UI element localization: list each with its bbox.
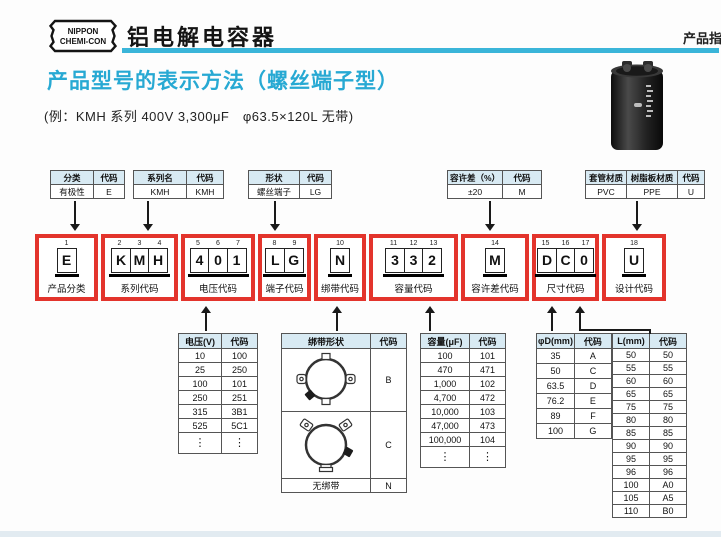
page-corner-label: 产品指 <box>683 28 721 47</box>
table-row: PVCPPEU <box>586 185 705 199</box>
column-header: 代码 <box>187 171 224 185</box>
table-cell: 104 <box>470 433 506 447</box>
table-row: KMHKMH <box>134 185 224 199</box>
column-header: 树脂板材质 <box>627 171 678 185</box>
table-row: 250251 <box>179 391 258 405</box>
table-row: 9090 <box>613 440 687 453</box>
code-box-5: 10N绑带代码 <box>314 234 366 301</box>
table-cell: ⋮ <box>421 447 470 468</box>
code-char: 0 <box>208 248 228 273</box>
table-cell: 10 <box>179 349 222 363</box>
table-row: 110B0 <box>613 505 687 518</box>
table-cell: 100 <box>222 349 258 363</box>
table-cell: C <box>371 412 407 479</box>
digit-positions: 89 <box>265 240 305 247</box>
column-header: 代码 <box>503 171 542 185</box>
table-cell: 473 <box>470 419 506 433</box>
table-cell: 47,000 <box>421 419 470 433</box>
table-row: 8585 <box>613 427 687 440</box>
code-characters: DC0 <box>537 248 594 273</box>
table-cell: 470 <box>421 363 470 377</box>
table-cell: ⋮ <box>222 433 258 454</box>
table-cell: 100 <box>179 377 222 391</box>
table-cell: 101 <box>222 377 258 391</box>
column-header: 代码 <box>222 334 258 349</box>
table: 绑带形状代码 B C无绑带N <box>281 333 407 493</box>
table-row: 无绑带N <box>282 479 407 493</box>
table-cell: 5C1 <box>222 419 258 433</box>
header-divider <box>122 48 719 53</box>
table-row: 76.2E <box>537 394 612 409</box>
table-cell: 25 <box>179 363 222 377</box>
table-cell: 100,000 <box>421 433 470 447</box>
position-number: 8 <box>265 240 285 247</box>
table: 容许差（%）代码±20M <box>447 170 542 199</box>
arrow-down-icon <box>489 201 491 225</box>
voltage-code-table: 电压(V)代码10100252501001012502513153B15255C… <box>178 333 258 454</box>
position-number: 2 <box>110 240 130 247</box>
table-row: C <box>282 412 407 479</box>
table-cell: 85 <box>613 427 650 440</box>
table-cell: 90 <box>650 440 687 453</box>
position-number: 11 <box>384 240 404 247</box>
table-cell: 50 <box>650 349 687 362</box>
column-header: φD(mm) <box>537 334 575 349</box>
table-cell: 10,000 <box>421 405 470 419</box>
table-row: ±20M <box>448 185 542 199</box>
table-cell: C <box>574 364 611 379</box>
table-cell: F <box>574 409 611 424</box>
table-cell: 103 <box>470 405 506 419</box>
table-row: 25250 <box>179 363 258 377</box>
table-cell: ±20 <box>448 185 503 199</box>
column-header: 分类 <box>51 171 94 185</box>
table-cell: 96 <box>613 466 650 479</box>
code-characters: U <box>624 248 644 273</box>
code-box-8: 151617DC0尺寸代码 <box>532 234 599 301</box>
table-cell: 85 <box>650 427 687 440</box>
table-cell: A0 <box>650 479 687 492</box>
table-row: 10,000103 <box>421 405 506 419</box>
length-code-table: L(mm)代码505055556060656575758080858590909… <box>612 333 687 518</box>
table-cell: 315 <box>179 405 222 419</box>
code-box-label: 产品分类 <box>47 281 85 295</box>
table-cell: 76.2 <box>537 394 575 409</box>
table-row: 10100 <box>179 349 258 363</box>
column-header: 代码 <box>574 334 611 349</box>
code-char: M <box>485 248 505 273</box>
arrow-up-icon <box>205 312 207 331</box>
position-number: 9 <box>285 240 305 247</box>
position-number: 4 <box>150 240 170 247</box>
table-cell: KMH <box>134 185 187 199</box>
code-box-label: 设计代码 <box>615 281 653 295</box>
table-row: 89F <box>537 409 612 424</box>
position-number: 14 <box>485 240 505 247</box>
table-row: ⋮⋮ <box>421 447 506 468</box>
arrow-up-icon <box>579 312 581 331</box>
table-cell: LG <box>300 185 332 199</box>
digit-positions: 14 <box>485 240 505 247</box>
table-cell: A5 <box>650 492 687 505</box>
table-cell: 100 <box>613 479 650 492</box>
table-cell: 4,700 <box>421 391 470 405</box>
code-char: K <box>111 248 131 273</box>
table-cell: D <box>574 379 611 394</box>
code-char: 3 <box>404 248 424 273</box>
table: 电压(V)代码10100252501001012502513153B15255C… <box>178 333 258 454</box>
table-cell: 60 <box>613 375 650 388</box>
table-row: 100A0 <box>613 479 687 492</box>
table-row: 100101 <box>421 349 506 363</box>
code-characters: LG <box>265 248 304 273</box>
position-number: 1 <box>57 240 77 247</box>
table-cell: 80 <box>650 414 687 427</box>
classification-table: 分类代码有极性E <box>50 170 125 199</box>
digit-positions: 1 <box>57 240 77 247</box>
band-shape-c-icon <box>296 414 356 474</box>
code-box-7: 14M容许差代码 <box>461 234 529 301</box>
code-box-label: 电压代码 <box>199 281 237 295</box>
table-cell: 3B1 <box>222 405 258 419</box>
table: 容量(μF)代码1001014704711,0001024,70047210,0… <box>420 333 506 468</box>
code-char: N <box>330 248 350 273</box>
code-char: 0 <box>574 248 594 273</box>
table-cell: 250 <box>222 363 258 377</box>
table-cell: 251 <box>222 391 258 405</box>
code-box-6: 111213332容量代码 <box>369 234 458 301</box>
table-row: 470471 <box>421 363 506 377</box>
position-number: 12 <box>404 240 424 247</box>
table-cell: 80 <box>613 414 650 427</box>
position-number: 15 <box>536 240 556 247</box>
table-cell: 100 <box>421 349 470 363</box>
code-char: U <box>624 248 644 273</box>
table-row: 105A5 <box>613 492 687 505</box>
table-cell: 65 <box>650 388 687 401</box>
column-header: 代码 <box>94 171 125 185</box>
logo-text-line1: NIPPON <box>68 27 99 36</box>
table-row: 100,000104 <box>421 433 506 447</box>
table-cell: 75 <box>613 401 650 414</box>
code-char: 1 <box>227 248 247 273</box>
table-row: 63.5D <box>537 379 612 394</box>
band-b-cell <box>282 349 371 412</box>
position-number: 16 <box>556 240 576 247</box>
column-header: 容许差（%） <box>448 171 503 185</box>
table-row: 5050 <box>613 349 687 362</box>
code-characters: 401 <box>190 248 247 273</box>
table-row: 9595 <box>613 453 687 466</box>
table-row: 有极性E <box>51 185 125 199</box>
diameter-code-table: φD(mm)代码35A50C63.5D76.2E89F100G <box>536 333 612 439</box>
table: 分类代码有极性E <box>50 170 125 199</box>
position-number: 3 <box>130 240 150 247</box>
column-header: 系列名 <box>134 171 187 185</box>
table-cell: 63.5 <box>537 379 575 394</box>
table-row: 螺丝端子LG <box>249 185 332 199</box>
code-char: M <box>130 248 150 273</box>
table-cell: 55 <box>613 362 650 375</box>
code-char: H <box>148 248 168 273</box>
table-row: 3153B1 <box>179 405 258 419</box>
code-char: E <box>57 248 77 273</box>
table-cell: E <box>94 185 125 199</box>
table-row: 4,700472 <box>421 391 506 405</box>
capacitor-image <box>606 59 668 157</box>
table-cell: 50 <box>537 364 575 379</box>
code-box-1: 1E产品分类 <box>35 234 98 301</box>
code-char: G <box>284 248 304 273</box>
shape-table: 形状代码螺丝端子LG <box>248 170 332 199</box>
code-char: L <box>265 248 285 273</box>
code-char: 3 <box>385 248 405 273</box>
code-char: 2 <box>422 248 442 273</box>
nippon-chemicon-logo: NIPPON CHEMI-CON <box>47 18 119 54</box>
digit-positions: 111213 <box>384 240 444 247</box>
code-characters: 332 <box>385 248 442 273</box>
code-char: 4 <box>190 248 210 273</box>
code-box-3: 567401电压代码 <box>181 234 255 301</box>
table-row: ⋮⋮ <box>179 433 258 454</box>
table-row: 35A <box>537 349 612 364</box>
code-box-label: 容量代码 <box>394 281 432 295</box>
code-box-label: 端子代码 <box>265 281 303 295</box>
arrow-up-icon <box>551 312 553 331</box>
table: φD(mm)代码35A50C63.5D76.2E89F100G <box>536 333 612 439</box>
column-header: 代码 <box>650 334 687 349</box>
table-cell: 96 <box>650 466 687 479</box>
catalog-page: NIPPON CHEMI-CON 铝电解电容器 产品指 产品型号的表示方法（螺丝… <box>0 0 721 537</box>
table-row: 9696 <box>613 466 687 479</box>
table-cell: 90 <box>613 440 650 453</box>
table-cell: B <box>371 349 407 412</box>
table-row: 100G <box>537 424 612 439</box>
table-cell: 65 <box>613 388 650 401</box>
arrow-up-icon <box>336 312 338 331</box>
table-row: 100101 <box>179 377 258 391</box>
table-cell: U <box>678 185 705 199</box>
tolerance-table: 容许差（%）代码±20M <box>447 170 542 199</box>
series-name-table: 系列名代码KMHKMH <box>133 170 224 199</box>
table-cell: G <box>574 424 611 439</box>
table-row: 5255C1 <box>179 419 258 433</box>
table-cell: 110 <box>613 505 650 518</box>
code-box-2: 234KMH系列代码 <box>101 234 178 301</box>
table: L(mm)代码505055556060656575758080858590909… <box>612 333 687 518</box>
table-cell: 有极性 <box>51 185 94 199</box>
section-title: 产品型号的表示方法（螺丝端子型） <box>47 65 399 95</box>
table-cell: 60 <box>650 375 687 388</box>
digit-positions: 18 <box>624 240 644 247</box>
arrow-down-icon <box>74 201 76 225</box>
table-row: 7575 <box>613 401 687 414</box>
table-cell: PPE <box>627 185 678 199</box>
table-cell: KMH <box>187 185 224 199</box>
column-header: 形状 <box>249 171 300 185</box>
column-header: 套管材质 <box>586 171 627 185</box>
table-cell: 75 <box>650 401 687 414</box>
table-row: 5555 <box>613 362 687 375</box>
band-shape-b-icon <box>296 351 356 407</box>
table-cell: 55 <box>650 362 687 375</box>
column-header: L(mm) <box>613 334 650 349</box>
column-header: 代码 <box>371 334 407 349</box>
table-row: 6060 <box>613 375 687 388</box>
table-cell: 471 <box>470 363 506 377</box>
code-char: C <box>556 248 576 273</box>
table-row: 6565 <box>613 388 687 401</box>
table-cell: 472 <box>470 391 506 405</box>
table-cell: 89 <box>537 409 575 424</box>
table-cell: 250 <box>179 391 222 405</box>
column-header: 代码 <box>300 171 332 185</box>
table-cell: 101 <box>470 349 506 363</box>
table-cell: 525 <box>179 419 222 433</box>
table-cell: 螺丝端子 <box>249 185 300 199</box>
column-header: 电压(V) <box>179 334 222 349</box>
table: 系列名代码KMHKMH <box>133 170 224 199</box>
table-row: 50C <box>537 364 612 379</box>
table: 形状代码螺丝端子LG <box>248 170 332 199</box>
example-text: (例：KMH 系列 400V 3,300μF φ63.5×120L 无带) <box>44 106 354 125</box>
arrow-down-icon <box>636 201 638 225</box>
digit-positions: 10 <box>330 240 350 247</box>
table: 套管材质树脂板材质代码PVCPPEU <box>585 170 705 199</box>
position-number: 18 <box>624 240 644 247</box>
band-c-cell <box>282 412 371 479</box>
table-row: B <box>282 349 407 412</box>
code-characters: KMH <box>111 248 168 273</box>
table-cell: B0 <box>650 505 687 518</box>
column-header: 绑带形状 <box>282 334 371 349</box>
digit-positions: 234 <box>110 240 170 247</box>
digit-positions: 567 <box>188 240 248 247</box>
code-box-label: 绑带代码 <box>321 281 359 295</box>
table-row: 8080 <box>613 414 687 427</box>
table-cell: A <box>574 349 611 364</box>
arrow-up-icon <box>429 312 431 331</box>
table-cell: 102 <box>470 377 506 391</box>
code-characters: M <box>485 248 505 273</box>
table-cell: 1,000 <box>421 377 470 391</box>
position-number: 5 <box>188 240 208 247</box>
digit-positions: 151617 <box>536 240 596 247</box>
table-cell: 105 <box>613 492 650 505</box>
logo-text-line2: CHEMI-CON <box>60 37 106 46</box>
table-cell: 35 <box>537 349 575 364</box>
code-char: D <box>537 248 557 273</box>
position-number: 17 <box>576 240 596 247</box>
position-number: 7 <box>228 240 248 247</box>
table-cell: 95 <box>650 453 687 466</box>
page-edge-strip <box>0 531 721 537</box>
elbow-connector-horizontal <box>579 329 651 331</box>
capacity-code-table: 容量(μF)代码1001014704711,0001024,70047210,0… <box>420 333 506 468</box>
table-cell: E <box>574 394 611 409</box>
table-cell: PVC <box>586 185 627 199</box>
position-number: 10 <box>330 240 350 247</box>
table-cell: ⋮ <box>470 447 506 468</box>
column-header: 容量(μF) <box>421 334 470 349</box>
part-number-code-row: 1E产品分类234KMH系列代码567401电压代码89LG端子代码10N绑带代… <box>35 234 666 301</box>
code-box-4: 89LG端子代码 <box>258 234 311 301</box>
table-row: 1,000102 <box>421 377 506 391</box>
table-cell: 95 <box>613 453 650 466</box>
position-number: 6 <box>208 240 228 247</box>
column-header: 代码 <box>678 171 705 185</box>
table-row: 47,000473 <box>421 419 506 433</box>
table-cell: 50 <box>613 349 650 362</box>
position-number: 13 <box>424 240 444 247</box>
code-characters: E <box>57 248 77 273</box>
table-cell: 无绑带 <box>282 479 371 493</box>
table-cell: N <box>371 479 407 493</box>
code-box-label: 系列代码 <box>120 281 158 295</box>
arrow-down-icon <box>274 201 276 225</box>
code-box-9: 18U设计代码 <box>602 234 666 301</box>
band-shape-table: 绑带形状代码 B C无绑带N <box>281 333 407 493</box>
table-cell: M <box>503 185 542 199</box>
table-cell: ⋮ <box>179 433 222 454</box>
arrow-down-icon <box>147 201 149 225</box>
code-box-label: 容许差代码 <box>471 281 519 295</box>
code-box-label: 尺寸代码 <box>546 281 584 295</box>
code-characters: N <box>330 248 350 273</box>
table-cell: 100 <box>537 424 575 439</box>
column-header: 代码 <box>470 334 506 349</box>
material-table: 套管材质树脂板材质代码PVCPPEU <box>585 170 705 199</box>
